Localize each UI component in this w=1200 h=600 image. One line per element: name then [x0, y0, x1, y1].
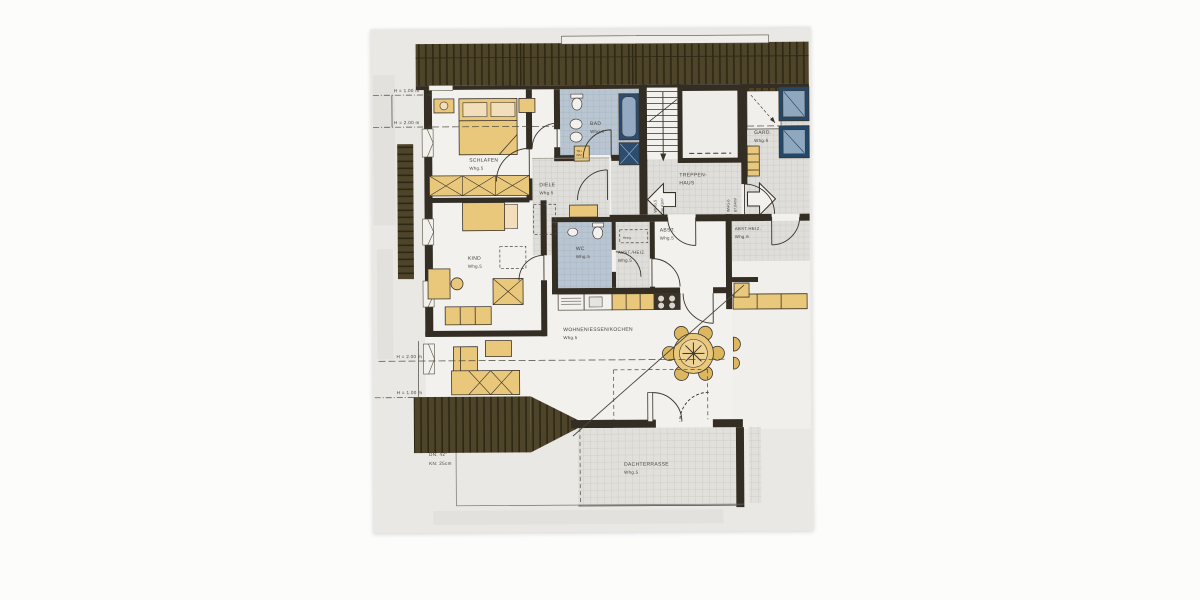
- room-abst-heiz5: ABST./HEIZ.: [618, 250, 646, 255]
- nightstand-right: [519, 98, 535, 112]
- room-kind: KIND: [468, 256, 481, 262]
- room-gard: GARD.: [754, 130, 771, 136]
- wc-toilet: [593, 227, 603, 239]
- svg-text:Whg.5: Whg.5: [539, 190, 553, 195]
- room-schlafen: SCHLAFEN: [469, 158, 498, 164]
- sideboard-kind: [445, 307, 491, 325]
- wc-sink: [568, 228, 578, 236]
- bed-kind: [463, 203, 505, 231]
- whg5-area-label: WHG.5: [653, 200, 658, 213]
- svg-text:94.41m²: 94.41m²: [659, 198, 664, 213]
- svg-text:Whg.6: Whg.6: [754, 138, 768, 143]
- svg-text:Whg.6: Whg.6: [735, 234, 749, 239]
- svg-text:Whg.5: Whg.5: [468, 264, 482, 269]
- gard-shelf: [747, 146, 759, 176]
- svg-text:Whg.5: Whg.5: [660, 235, 674, 240]
- room-treppenhaus: TREPPEN-: [679, 172, 707, 178]
- knee-wall-note: KN: 25cm: [429, 461, 452, 466]
- treppenhaus-core: [647, 87, 740, 162]
- svg-text:Whg.5: Whg.5: [618, 258, 632, 263]
- shelf-whg6: [734, 283, 749, 297]
- room-diele: DIELE: [539, 182, 555, 188]
- svg-text:WM: WM: [576, 153, 582, 157]
- room-abst-heiz6: ABST.HEIZ.: [735, 226, 761, 231]
- dormer-strip: [562, 35, 769, 44]
- bad-toilet: [572, 98, 582, 110]
- room-wohnen: WOHNEN/ESSEN/KOCHEN: [563, 327, 633, 333]
- kitchen-counter: [558, 293, 680, 310]
- room-dachterrasse: DACHTERRASSE: [624, 462, 669, 468]
- svg-text:Whg.5: Whg.5: [624, 470, 638, 475]
- room-bad: BAD: [590, 121, 601, 127]
- svg-text:Whg.5: Whg.5: [576, 254, 590, 259]
- svg-text:87.84m²: 87.84m²: [732, 197, 737, 212]
- room-abst5: ABST.: [660, 227, 675, 233]
- chair-kind: [451, 278, 463, 290]
- desk-kind: [428, 269, 450, 299]
- terrace-door-leaf: [648, 393, 653, 422]
- whg6-area-label: WHG.6: [726, 199, 731, 212]
- bad-sink-2: [570, 132, 582, 142]
- bad-sink-1: [570, 119, 582, 129]
- svg-text:Whg.5: Whg.5: [469, 166, 483, 171]
- kitchen-stove: [654, 293, 680, 309]
- elevator-shaft: [680, 88, 740, 160]
- svg-text:Whg.5: Whg.5: [590, 129, 604, 134]
- dim-h200-top: H = 2.00 m: [394, 120, 420, 125]
- svg-text:HAUS: HAUS: [679, 180, 694, 186]
- label-heizg: Heizg.: [623, 236, 632, 240]
- dim-h100-top: H = 1.00 m: [394, 88, 420, 93]
- roof-hatch-left: [397, 144, 414, 279]
- floorplan-photo: H = 1.00 m H = 2.00 m H = 2.00 m H = 1.0…: [370, 27, 813, 534]
- floorplan-drawing: H = 1.00 m H = 2.00 m H = 2.00 m H = 1.0…: [370, 27, 813, 534]
- sideboard-diele: [570, 205, 598, 217]
- dim-h100-bottom: H = 1.00 m: [397, 390, 423, 395]
- screenshot-root: { "plan": { "dimensions": { "top_h1": "H…: [0, 0, 1200, 600]
- svg-text:Whg.5: Whg.5: [563, 335, 577, 340]
- dim-h200-bottom: H = 2.00 m: [396, 354, 422, 359]
- treppenhaus-floor: [611, 157, 741, 215]
- roof-hatch-bottom: [414, 396, 531, 453]
- roof-pitch-note: DN: 42°: [429, 452, 447, 457]
- room-wc: WC: [576, 246, 585, 252]
